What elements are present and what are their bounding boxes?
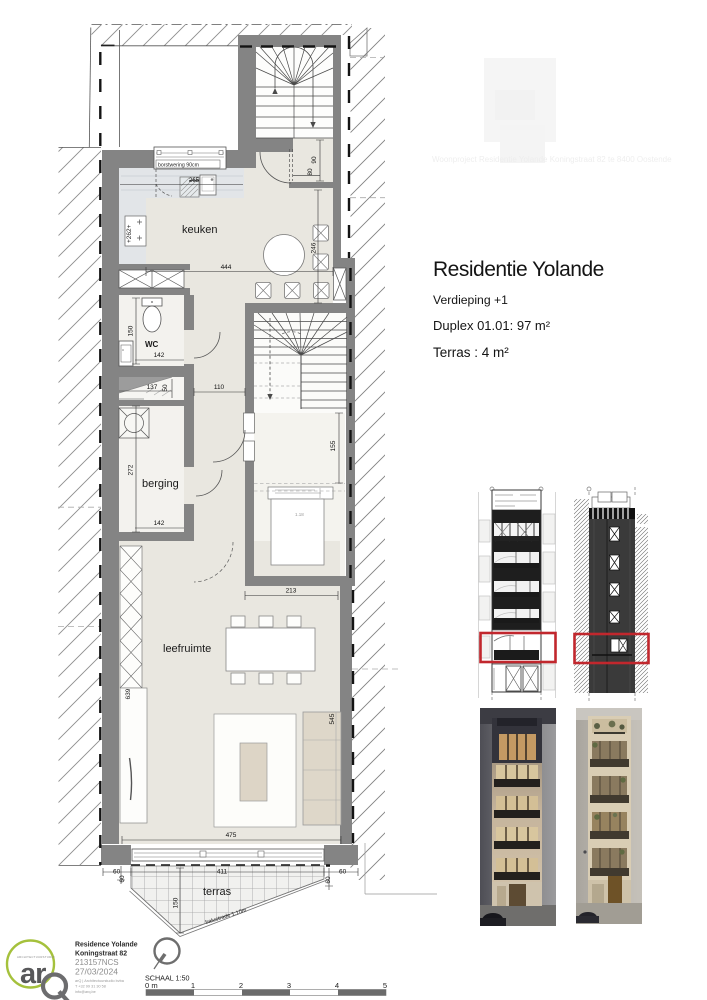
svg-text:110: 110 [214,384,225,391]
svg-text:+262+: +262+ [126,224,133,243]
svg-text:90: 90 [311,156,318,164]
svg-text:155: 155 [330,440,337,451]
svg-text:545: 545 [329,713,336,724]
svg-text:411: 411 [217,869,228,876]
svg-text:80: 80 [307,168,314,176]
svg-text:Verdieping +1: Verdieping +1 [433,293,508,307]
svg-text:60: 60 [113,869,121,876]
svg-text:142: 142 [154,352,165,359]
svg-text:5: 5 [383,981,387,990]
svg-text:3: 3 [287,981,291,990]
svg-text:Woonproject Residentie Yolande: Woonproject Residentie Yolande Koningstr… [432,155,672,164]
svg-text:60: 60 [339,869,347,876]
svg-text:246: 246 [311,242,318,253]
svg-text:475: 475 [226,832,237,839]
svg-text:265: 265 [189,178,200,184]
svg-text:borstwering 90cm: borstwering 90cm [158,163,199,169]
svg-text:150: 150 [128,325,135,336]
svg-text:Residence Yolande: Residence Yolande [75,942,138,949]
svg-text:1: 1 [191,981,195,990]
svg-text:ARCHITECTUURSTUDIO: ARCHITECTUURSTUDIO [17,955,56,959]
svg-text:50: 50 [162,384,169,392]
svg-text:142: 142 [154,520,165,527]
svg-text:1.18: 1.18 [295,512,304,517]
svg-text:2: 2 [239,981,243,990]
svg-text:arQ | Architectuurstudio bvba: arQ | Architectuurstudio bvba [75,979,125,983]
svg-text:WC: WC [145,340,159,349]
svg-text:Residentie Yolande: Residentie Yolande [433,258,604,281]
svg-text:60: 60 [119,875,126,883]
svg-text:keuken: keuken [182,224,217,236]
svg-text:0 m: 0 m [145,981,158,990]
svg-text:berging: berging [142,478,179,490]
svg-text:4: 4 [335,981,339,990]
svg-text:60: 60 [325,876,332,884]
svg-text:Koningstraat 82: Koningstraat 82 [75,951,127,958]
svg-text:info@arq.be: info@arq.be [75,990,96,994]
svg-text:137: 137 [147,384,158,391]
svg-text:terras: terras [203,886,232,898]
svg-text:272: 272 [128,464,135,475]
svg-text:T +32 99 31 30 58: T +32 99 31 30 58 [75,985,106,989]
svg-text:213: 213 [286,588,297,595]
svg-text:27/03/2024: 27/03/2024 [75,967,118,977]
svg-text:444: 444 [221,264,232,271]
svg-text:639: 639 [125,688,132,699]
svg-text:leefruimte: leefruimte [163,643,211,655]
svg-text:150: 150 [173,897,180,908]
svg-text:Duplex 01.01: 97 m²: Duplex 01.01: 97 m² [433,318,551,333]
svg-text:Terras : 4 m²: Terras : 4 m² [433,345,509,360]
